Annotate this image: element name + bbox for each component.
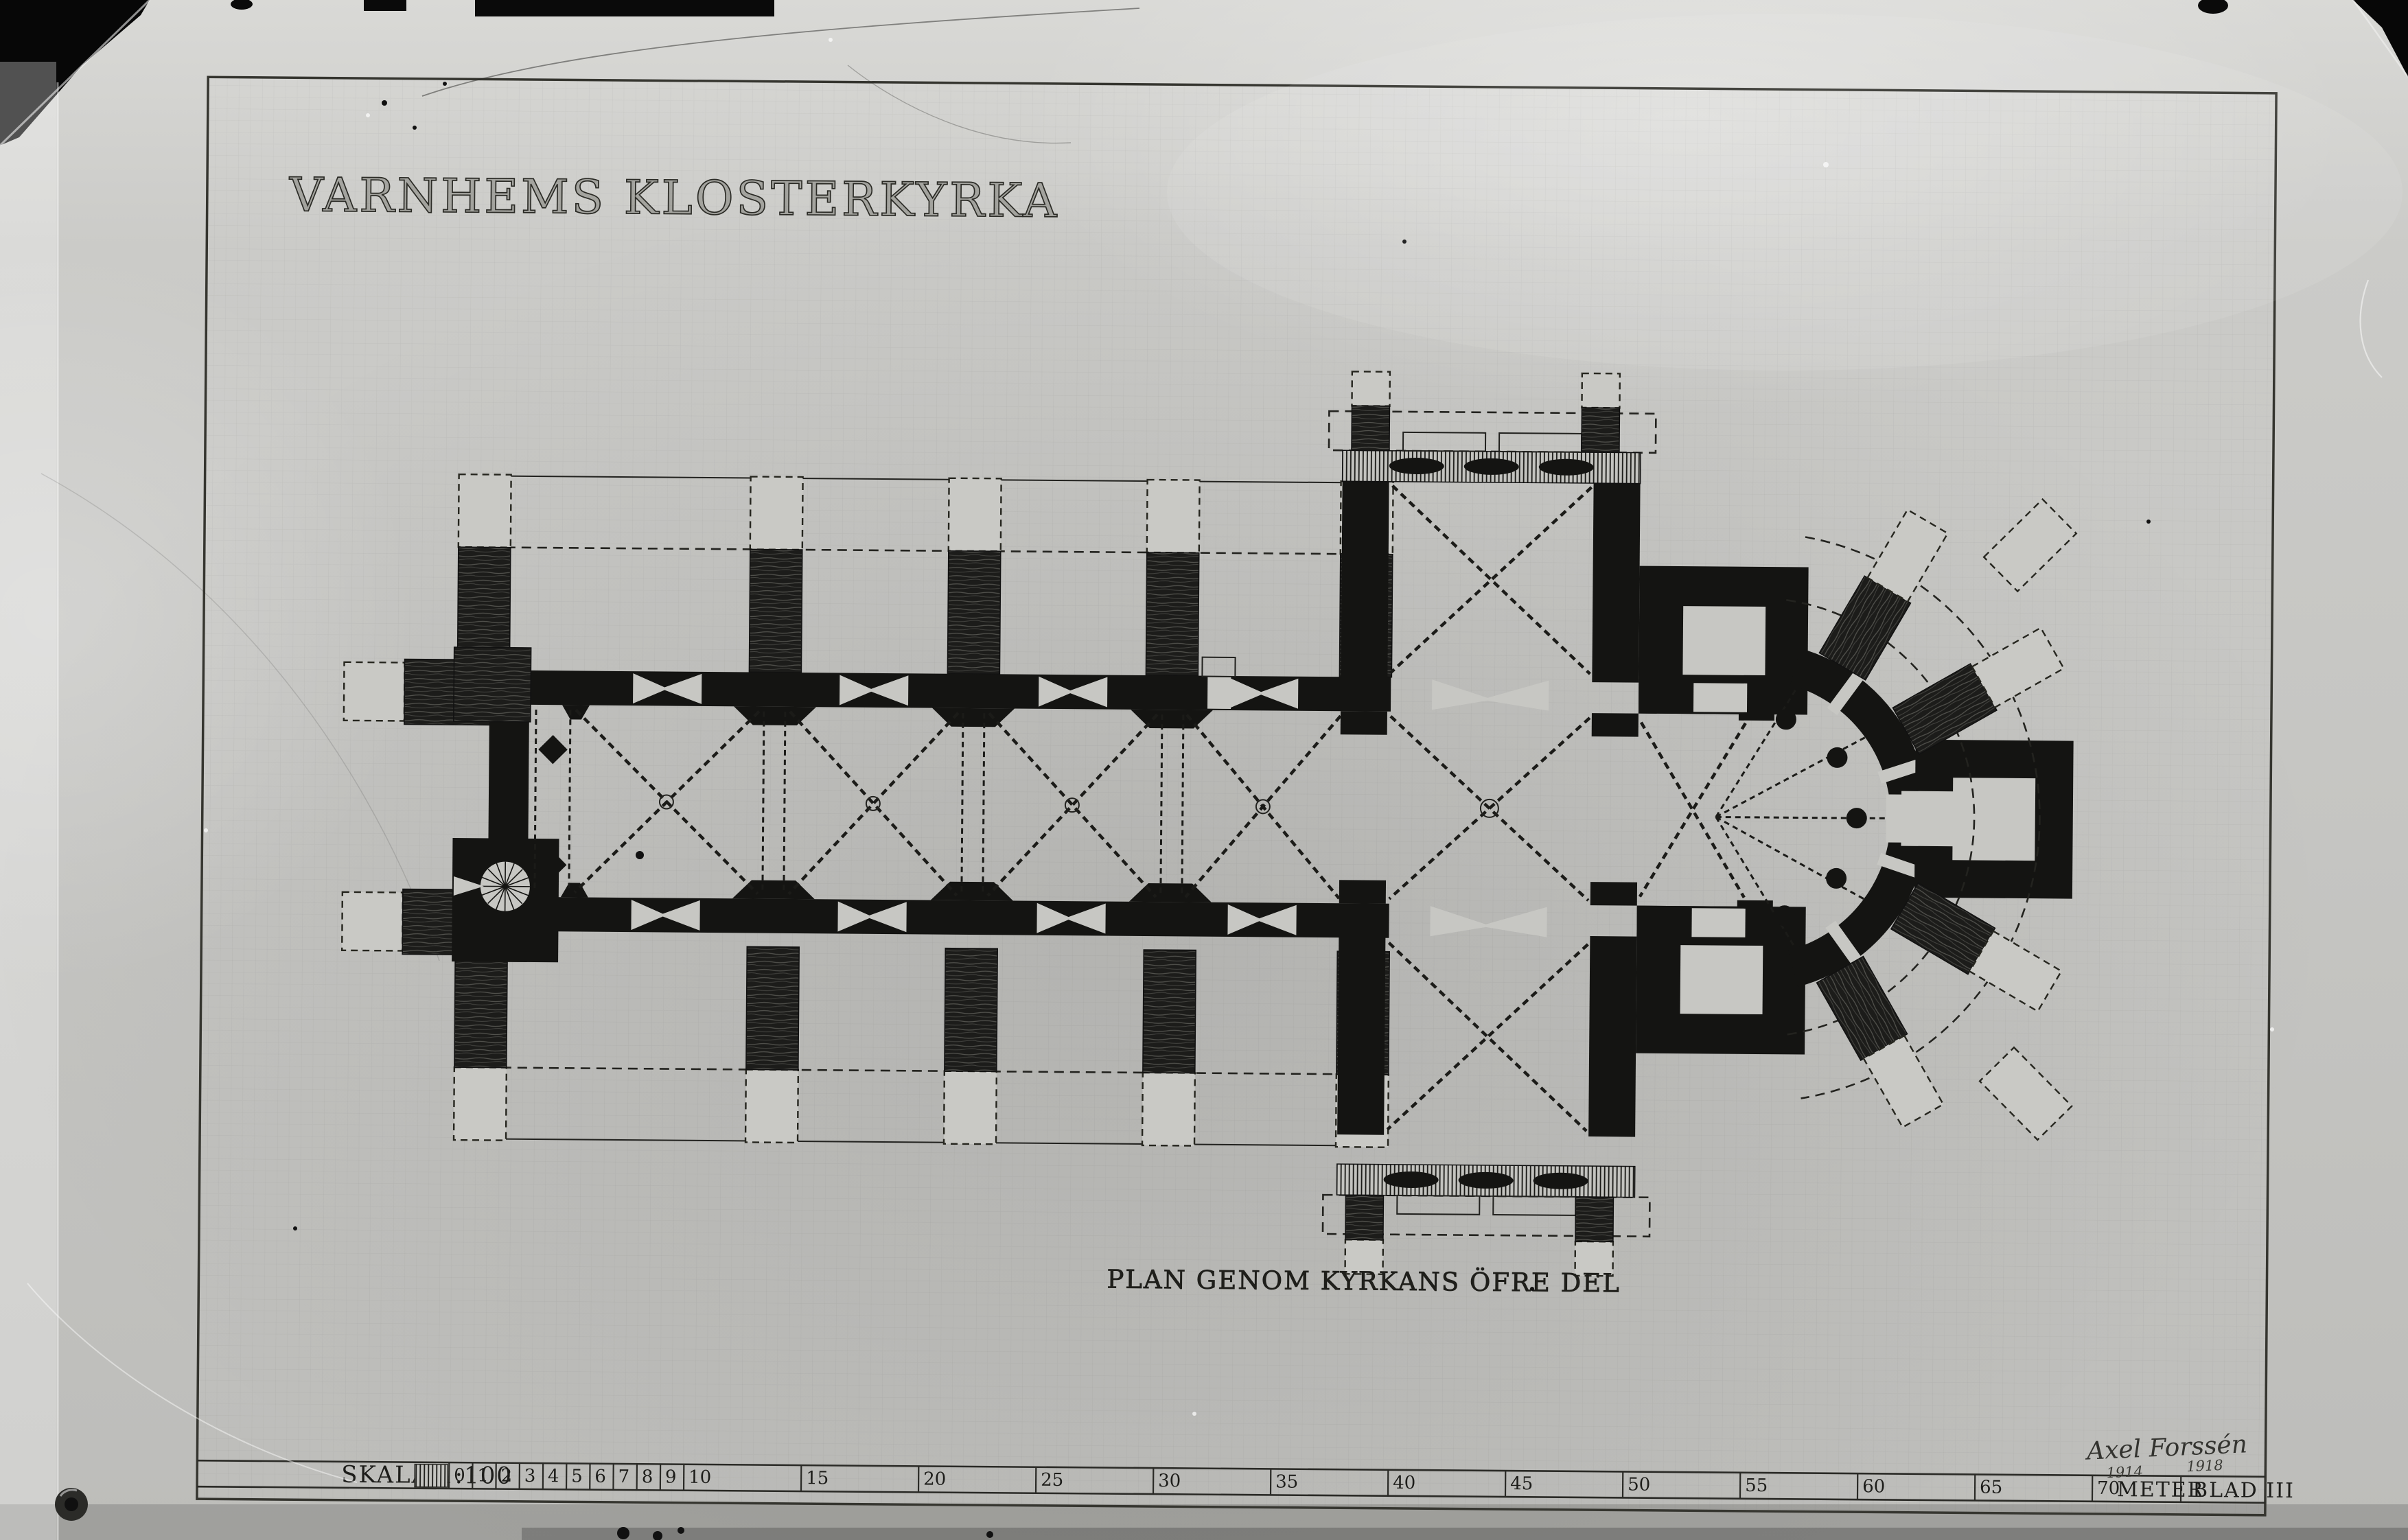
scale-tick-label: 10 (688, 1467, 711, 1488)
scale-tick-label: 9 (665, 1467, 677, 1488)
scale-tick-label: 3 (524, 1466, 536, 1486)
drawing-title: VARNHEMS KLOSTERKYRKA (289, 168, 1060, 229)
sheet-number: BLAD III (2192, 1478, 2295, 1503)
floor-plan-drawing: VARNHEMS KLOSTERKYRKA PLAN GENOM KYRKANS… (0, 0, 2408, 1540)
scale-tick-label: 65 (1980, 1478, 2002, 1498)
scale-tick-label: 5 (571, 1466, 583, 1486)
scale-tick-label: 0 (454, 1465, 465, 1486)
scale-tick-label: 20 (923, 1469, 946, 1489)
signature-year-left: 1914 (2106, 1463, 2143, 1481)
scale-tick-label: 25 (1041, 1470, 1063, 1491)
spiral-stair-turret (452, 838, 559, 962)
scale-tick-label: 50 (1628, 1475, 1650, 1495)
scale-tick-label: 6 (594, 1467, 606, 1487)
scale-tick-label: 45 (1510, 1473, 1533, 1494)
push-pin (55, 1488, 88, 1521)
signature-year-right: 1918 (2186, 1457, 2223, 1475)
scale-tick-label: 35 (1275, 1471, 1298, 1492)
scale-tick-label: 4 (548, 1466, 559, 1486)
plan-caption: PLAN GENOM KYRKANS ÖFRE DEL (1107, 1264, 1621, 1298)
scale-tick-label: 8 (642, 1467, 653, 1487)
decimeter-ruler (415, 1465, 448, 1487)
unit-label: METER (2117, 1478, 2204, 1502)
scale-tick-label: 1 (477, 1465, 489, 1486)
scale-tick-label: 55 (1745, 1475, 1768, 1496)
scale-tick-label: 60 (1862, 1476, 1885, 1497)
scale-tick-label: 15 (806, 1468, 829, 1489)
scale-tick-label: 30 (1158, 1471, 1181, 1491)
scale-tick-label: 7 (618, 1467, 629, 1487)
photographed-drawing-plate: VARNHEMS KLOSTERKYRKA PLAN GENOM KYRKANS… (0, 0, 2408, 1540)
scale-tick-label: 40 (1393, 1473, 1415, 1493)
scale-tick-label: 2 (500, 1466, 512, 1486)
